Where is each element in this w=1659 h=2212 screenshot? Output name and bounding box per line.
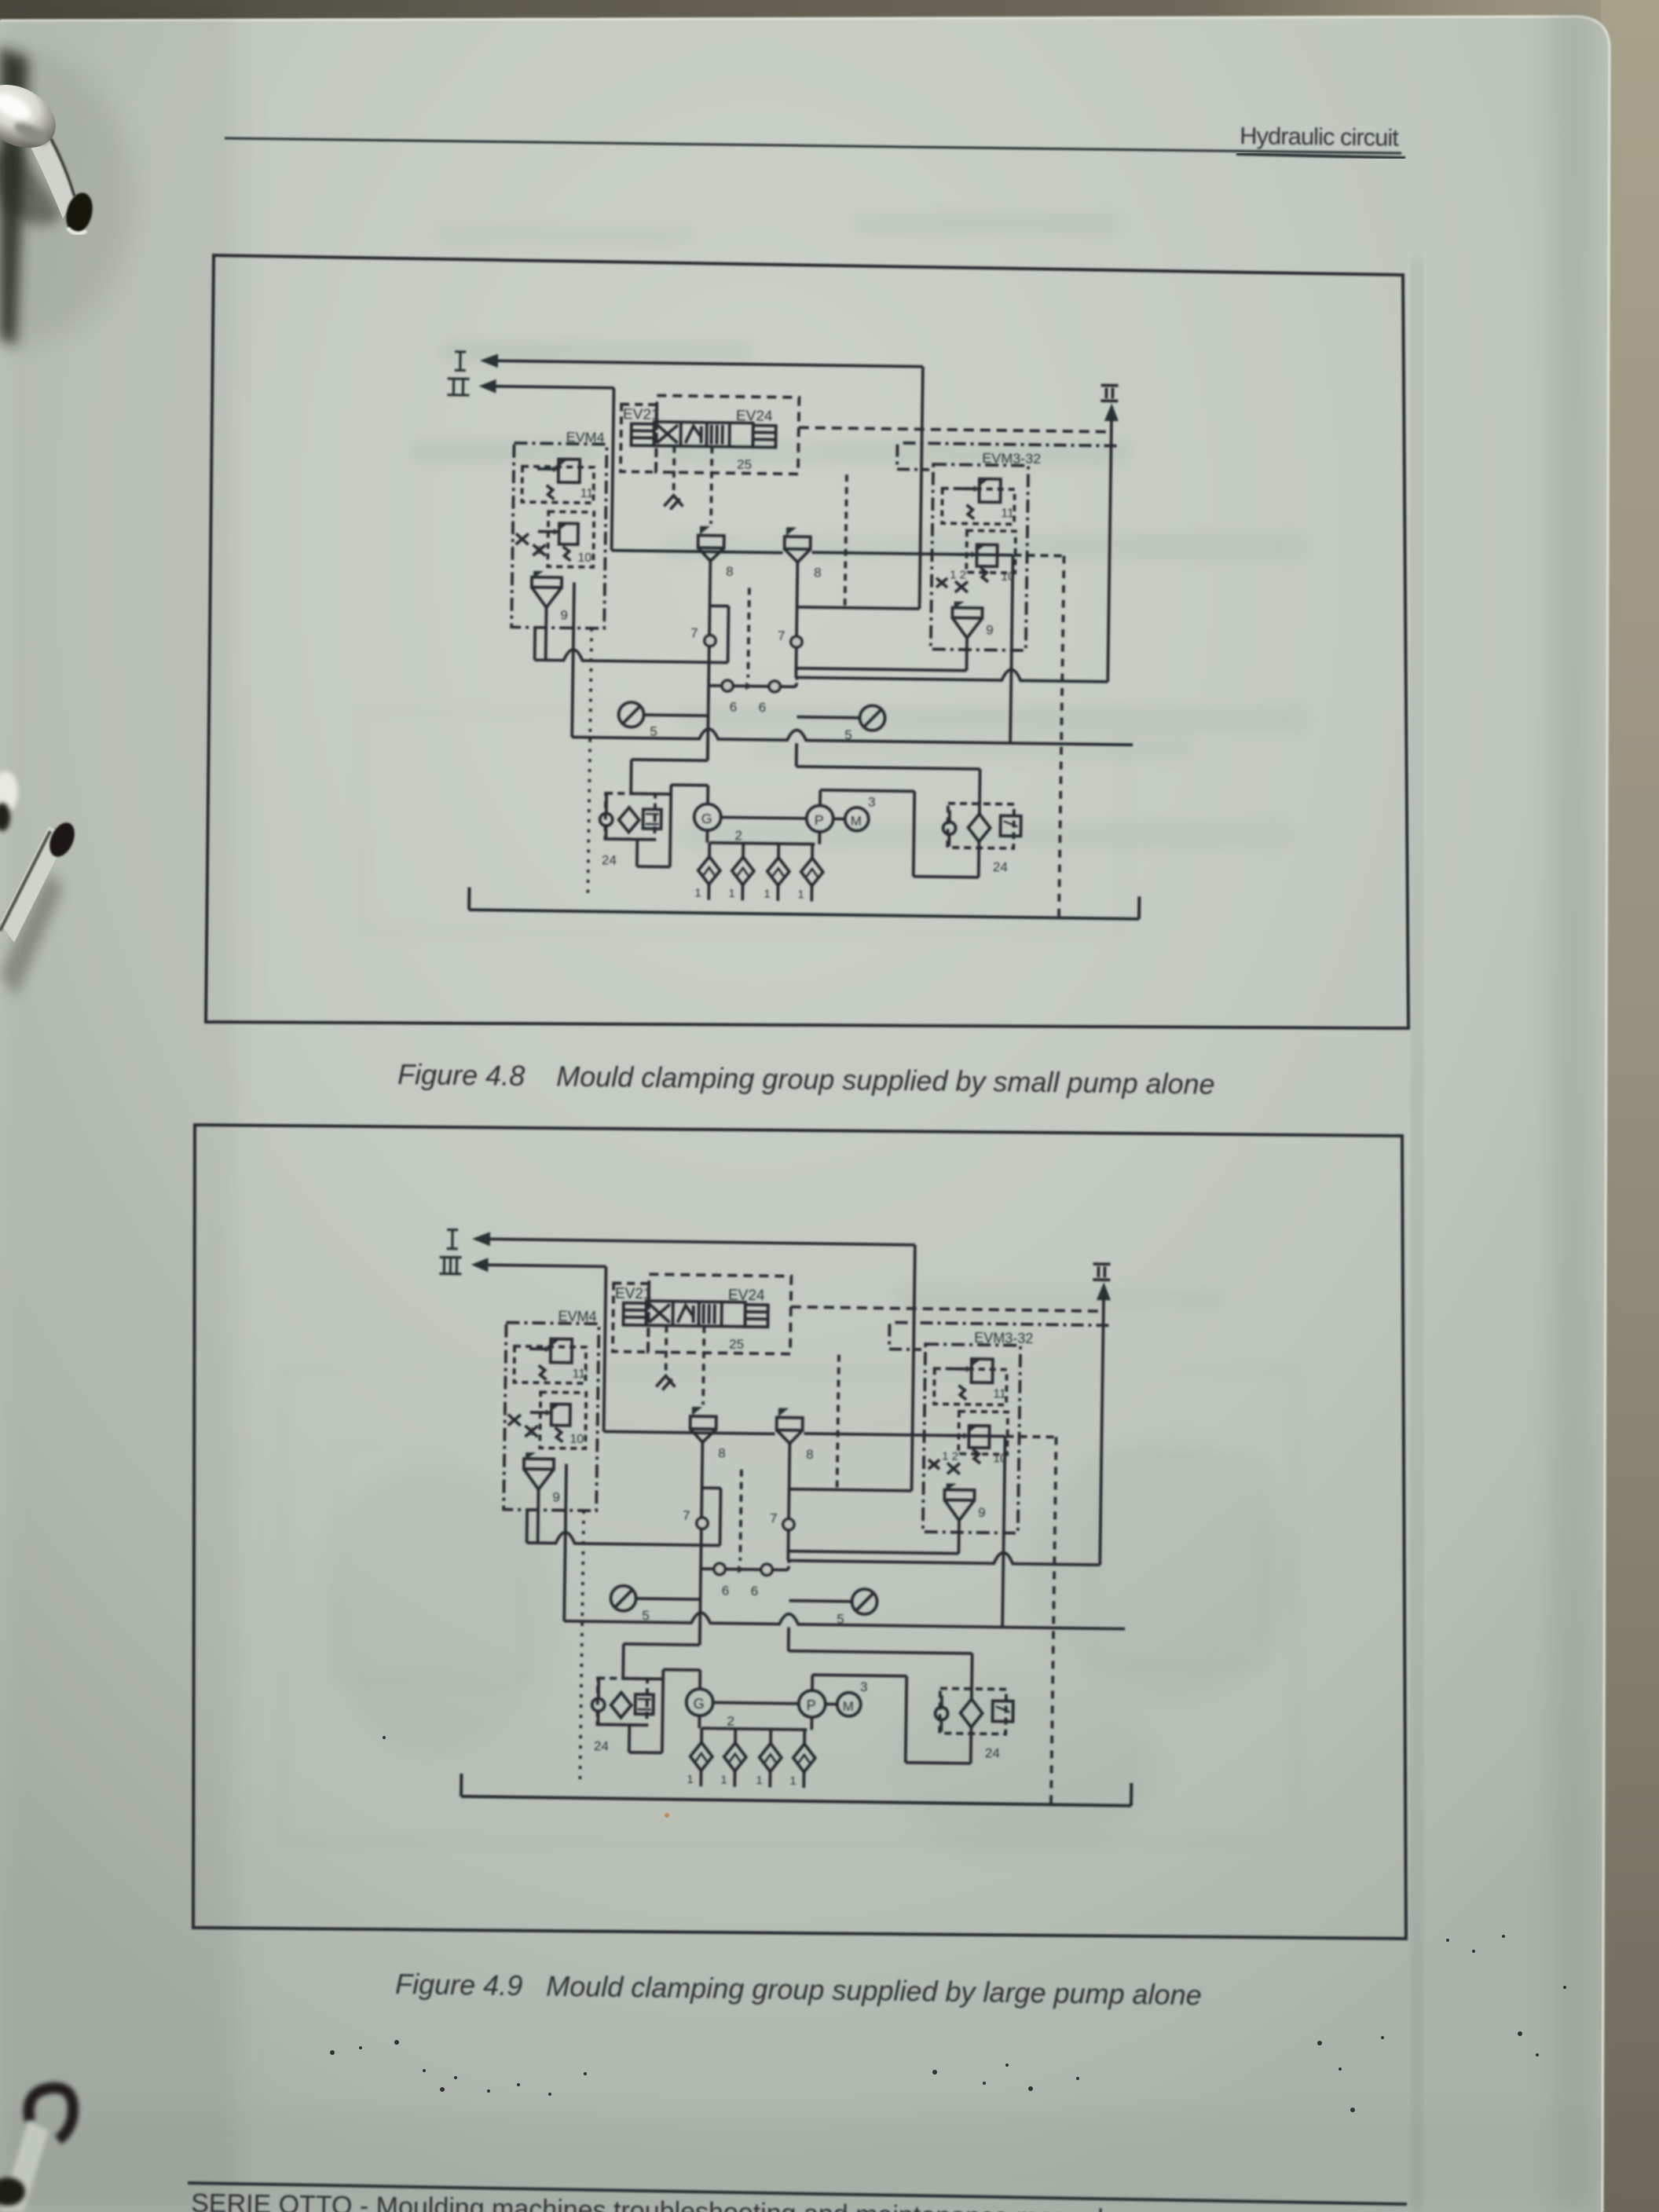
svg-text:Hydraulic circuit: Hydraulic circuit bbox=[1240, 122, 1400, 152]
